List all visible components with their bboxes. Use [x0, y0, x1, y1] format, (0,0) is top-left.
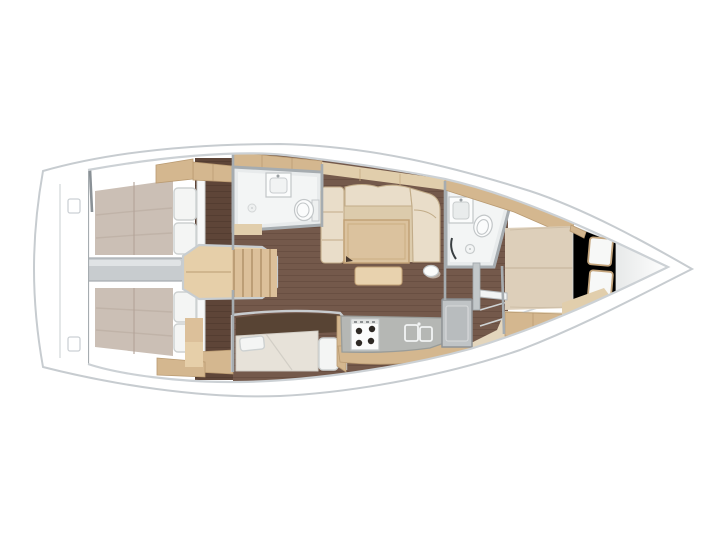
- toilet: [295, 200, 320, 222]
- stern-locker-hatch: [68, 199, 80, 213]
- head-vanity: [234, 224, 262, 235]
- pillow: [174, 188, 196, 220]
- cabin-steps: [185, 318, 203, 367]
- sofa-back: [345, 185, 412, 207]
- door-frame-post: [473, 263, 480, 310]
- stove: [351, 319, 379, 350]
- yacht-floorplan-image: [0, 0, 720, 540]
- sofa-corner: [410, 188, 440, 262]
- shower-drain: [248, 204, 256, 212]
- floorplan-canvas: [0, 0, 720, 540]
- companionway-stairs: [183, 245, 277, 299]
- aft-head: [233, 152, 322, 235]
- stool: [355, 267, 402, 285]
- pillow: [174, 292, 196, 322]
- engine-compartment: [84, 258, 183, 281]
- washbasin: [449, 197, 473, 223]
- pillow: [239, 336, 264, 351]
- quarter-berth: [232, 311, 346, 372]
- berth-end-cushion: [319, 338, 338, 370]
- stern-locker-hatch: [68, 337, 80, 351]
- washbasin: [266, 173, 291, 197]
- sofa-chaise: [321, 187, 344, 263]
- forward-cabin-door: [442, 300, 472, 347]
- pillow: [588, 237, 613, 266]
- wardrobe: [193, 162, 232, 182]
- saloon-table: [344, 220, 409, 263]
